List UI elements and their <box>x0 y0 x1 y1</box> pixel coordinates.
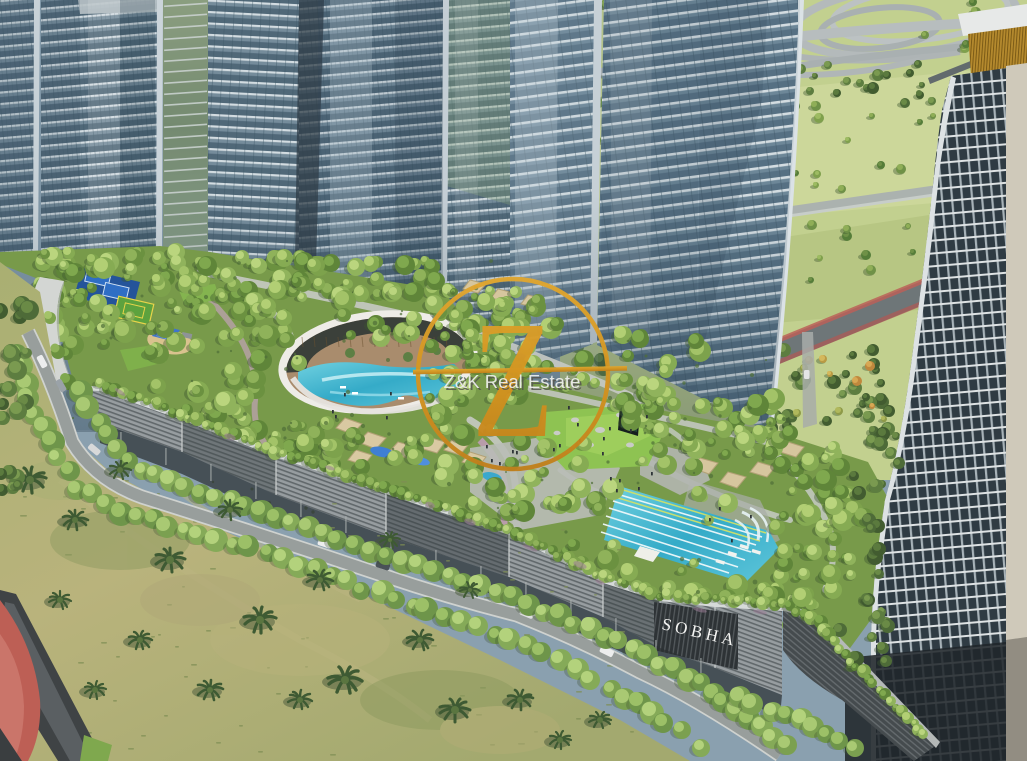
svg-text:Z&K Real Estate: Z&K Real Estate <box>444 371 581 392</box>
